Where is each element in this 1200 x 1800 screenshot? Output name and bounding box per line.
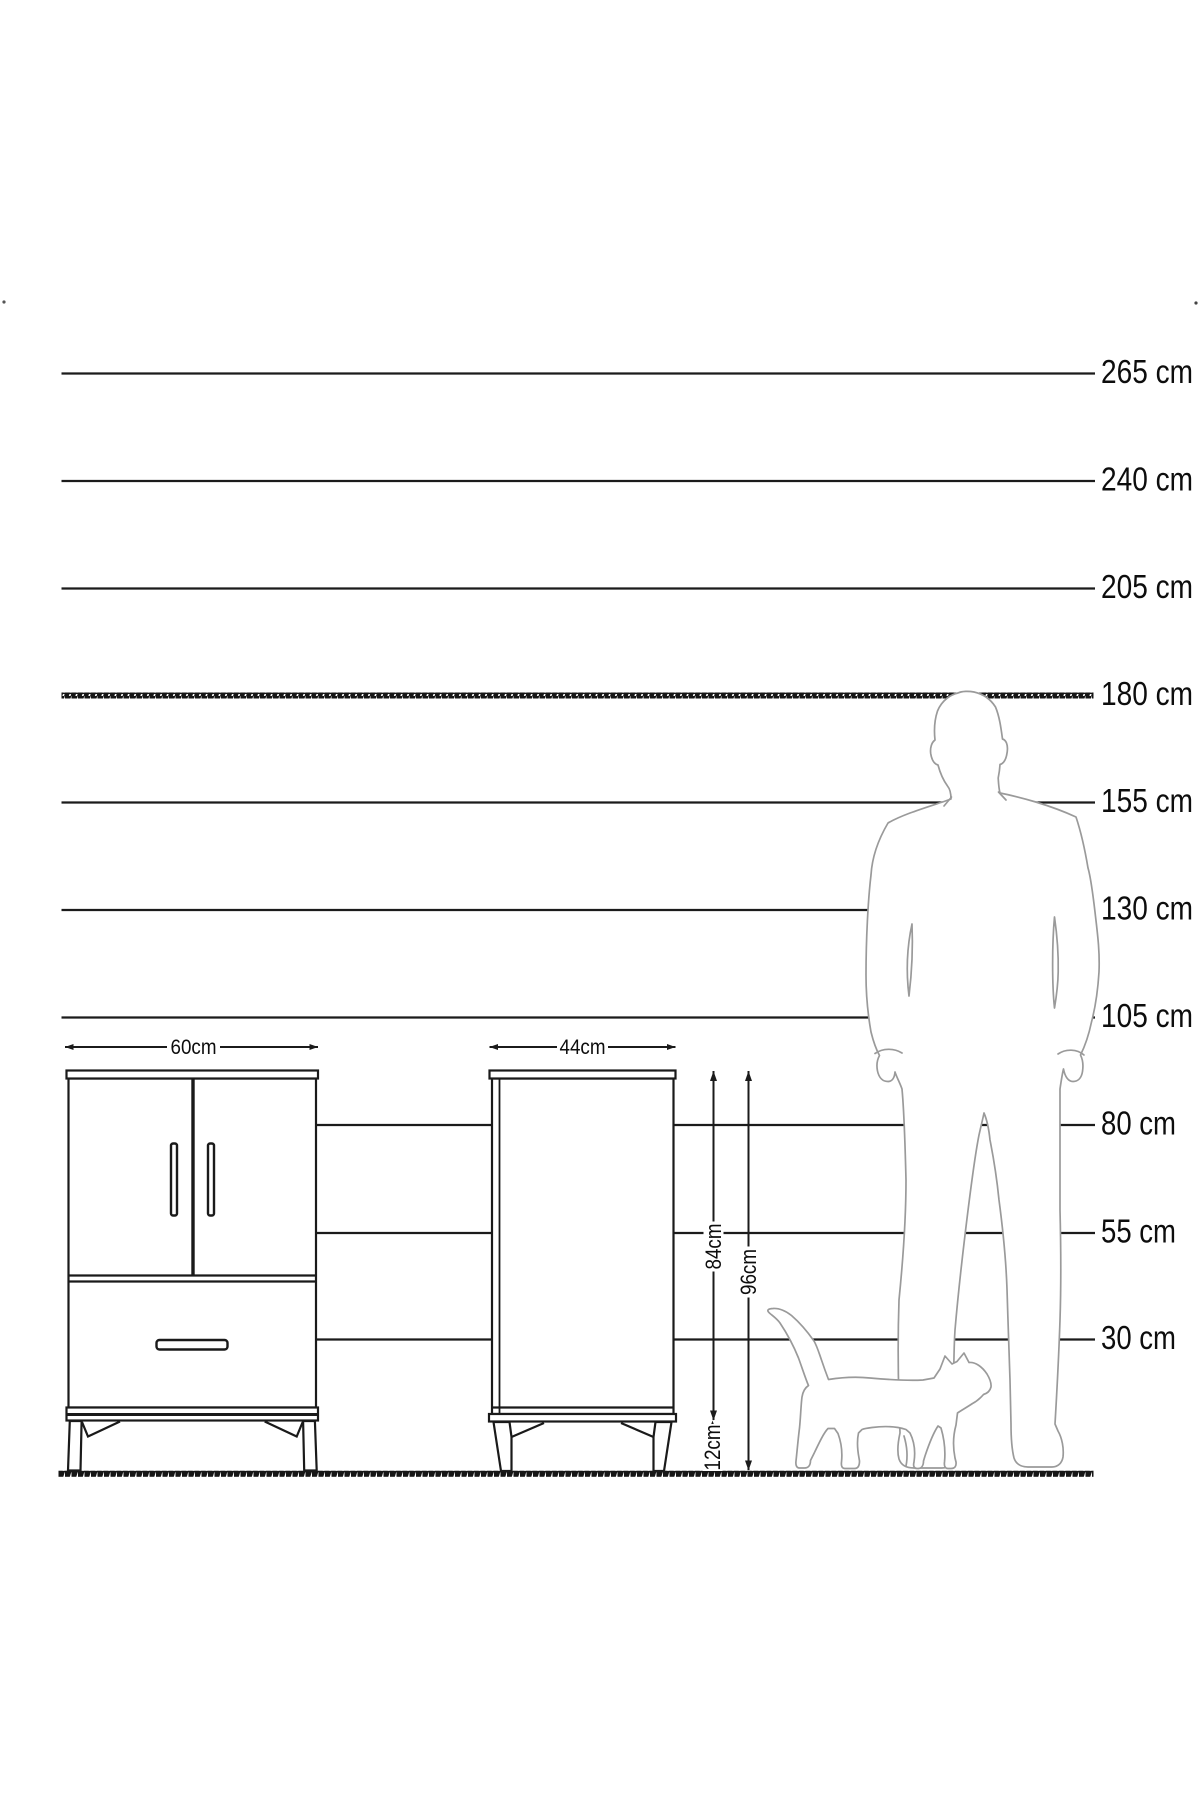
svg-text:96cm: 96cm: [736, 1249, 761, 1295]
svg-text:105 cm: 105 cm: [1101, 998, 1193, 1035]
svg-text:44cm: 44cm: [560, 1036, 606, 1059]
svg-text:12cm: 12cm: [700, 1425, 725, 1471]
svg-text:130 cm: 130 cm: [1101, 891, 1193, 928]
svg-text:84cm: 84cm: [701, 1224, 726, 1270]
svg-text:205 cm: 205 cm: [1101, 569, 1193, 606]
svg-text:180 cm: 180 cm: [1101, 676, 1193, 713]
svg-text:30 cm: 30 cm: [1101, 1320, 1176, 1357]
svg-text:155 cm: 155 cm: [1101, 783, 1193, 820]
svg-text:55 cm: 55 cm: [1101, 1214, 1176, 1251]
svg-text:60cm: 60cm: [171, 1036, 217, 1059]
svg-text:240 cm: 240 cm: [1101, 462, 1193, 499]
svg-text:80 cm: 80 cm: [1101, 1106, 1176, 1143]
svg-text:265 cm: 265 cm: [1101, 354, 1193, 391]
